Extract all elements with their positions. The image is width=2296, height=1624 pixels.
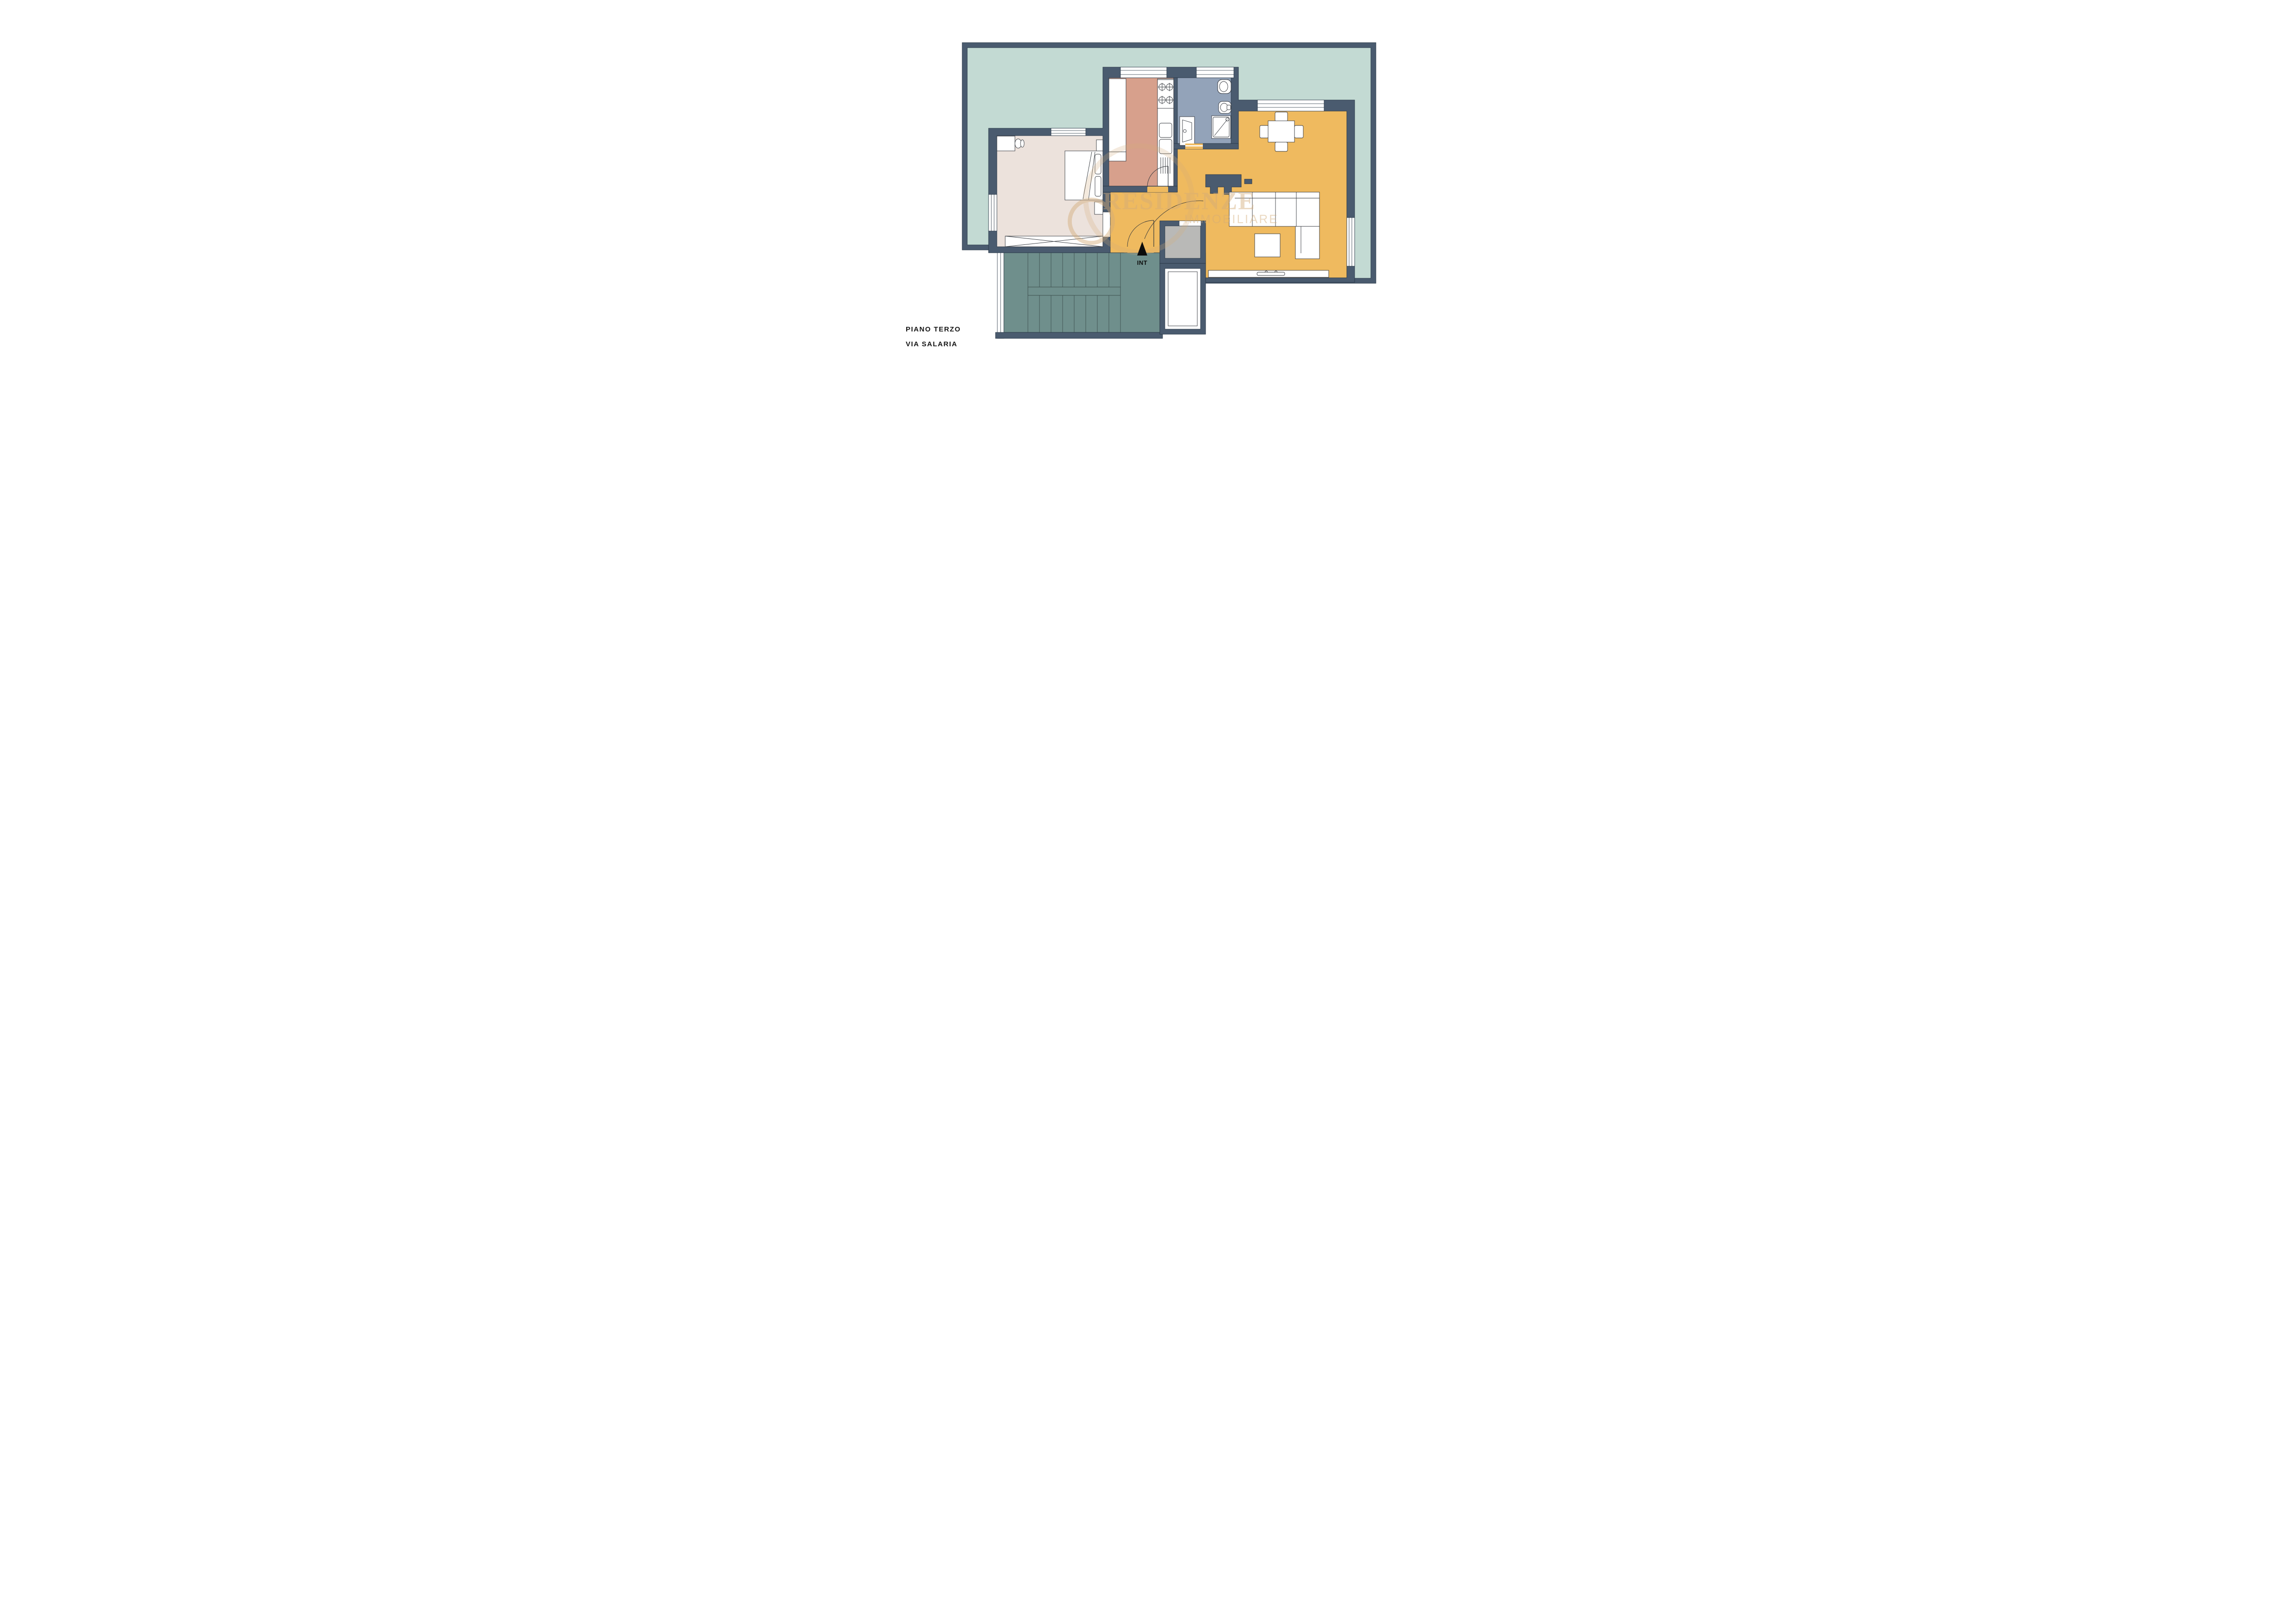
street-title: VIA SALARIA [906,340,958,348]
watermark-brand-text: RESIDENZE [1103,187,1256,215]
stairwell-left-window [997,253,1004,338]
wall-stub-small [1244,179,1252,184]
living-right-window [1347,218,1355,266]
stove [1157,80,1174,108]
bed-pillow [1095,176,1101,196]
elevator [1160,263,1206,334]
bedroom-top-window [1051,128,1086,136]
toilet [1218,80,1231,94]
elevator-shaft [1165,269,1201,329]
sofa-chaise [1295,226,1319,259]
nightstand [1096,140,1103,151]
dining-chair [1275,112,1288,121]
shower [1212,116,1231,138]
bathroom-top-window [1196,67,1234,78]
coffee-table [1255,234,1280,257]
stairwell-bottom-wall [996,332,1163,338]
tv [1257,272,1285,275]
floor-title: PIANO TERZO [906,325,961,333]
entrance-label: INT [1137,259,1147,266]
living-top-window [1257,100,1324,111]
dining-chair [1260,125,1269,138]
watermark-brand-subtext: IMMOBILIARE [1184,212,1278,226]
dining-table [1268,121,1294,142]
stairwell-floor [1004,253,1160,332]
tv-sideboard [1208,270,1329,277]
bedroom-left-window [989,194,997,231]
floor-plan-page: RESIDENZE IMMOBILIARE INT PIANO TERZO VI… [861,0,1435,406]
desk-chair-back [1020,140,1024,147]
kitchen-top-window [1120,67,1167,78]
desk [997,136,1015,151]
kitchen-bath-partition-wall [1174,78,1177,192]
dining-chair [1294,125,1303,138]
dining-chair [1275,142,1288,151]
floor-plan-canvas: RESIDENZE IMMOBILIARE INT PIANO TERZO VI… [861,0,1435,406]
bath-sink [1180,117,1195,145]
bidet [1219,101,1231,113]
